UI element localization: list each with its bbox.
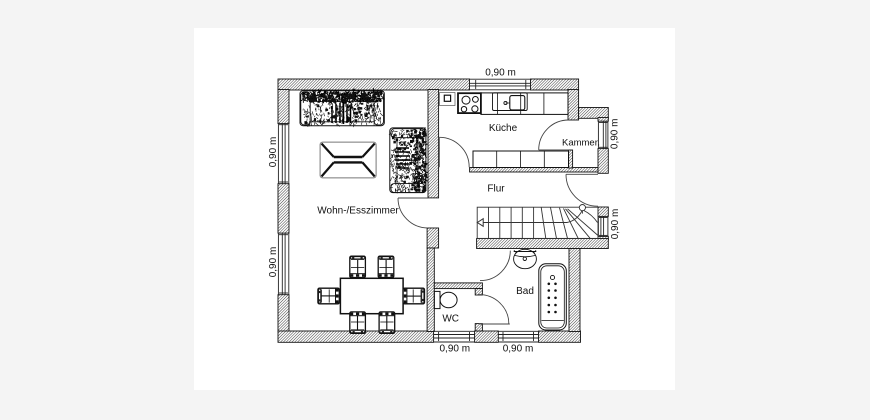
svg-text:Küche: Küche xyxy=(489,123,518,134)
svg-text:Bad: Bad xyxy=(516,286,534,297)
svg-text:0,90 m: 0,90 m xyxy=(610,209,621,240)
svg-text:0,90 m: 0,90 m xyxy=(268,247,279,278)
svg-text:0,90 m: 0,90 m xyxy=(503,343,534,354)
svg-text:WC: WC xyxy=(442,313,459,324)
svg-text:Kammer.: Kammer. xyxy=(562,138,600,149)
svg-text:Flur: Flur xyxy=(487,183,505,194)
svg-text:0,90 m: 0,90 m xyxy=(609,119,620,150)
svg-text:0,90 m: 0,90 m xyxy=(440,343,471,354)
svg-text:Wohn-/Esszimmer: Wohn-/Esszimmer xyxy=(317,206,399,217)
svg-text:0,90 m: 0,90 m xyxy=(485,67,516,78)
svg-text:0,90 m: 0,90 m xyxy=(268,137,279,168)
